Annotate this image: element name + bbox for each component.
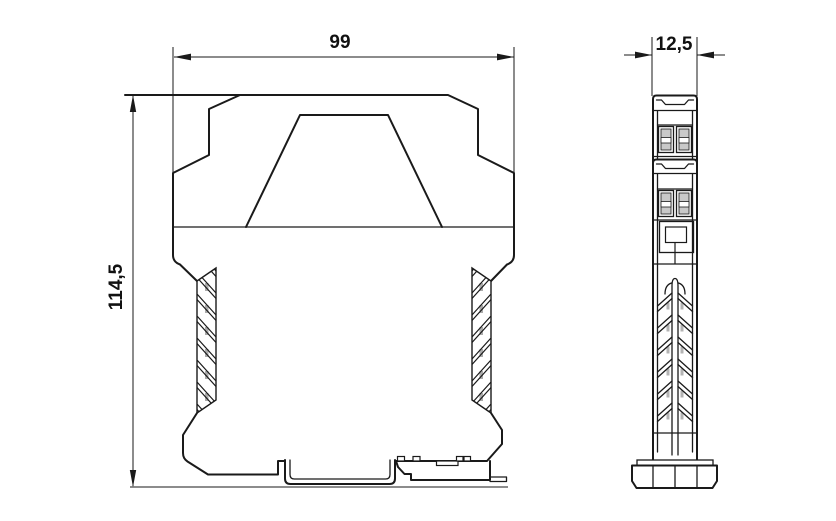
dimension-arrow-icon [635,52,652,59]
dimension-arrow-icon [497,54,514,61]
dimension-side-width: 12,5 [624,34,725,96]
side-inner-rails [658,111,693,452]
front-outline-bottom-left [183,413,285,475]
fir-tree-branches-right [678,293,693,422]
terminal-screws [659,127,692,217]
din-rail-channel-outer [285,460,395,484]
front-connector-band-right [472,268,491,413]
side-top-cap [653,96,697,112]
dimension-arrow-icon [697,52,714,59]
dimension-label-front-width: 99 [329,32,350,53]
extension-lines [173,47,514,173]
fir-tree-connector [653,279,697,456]
dimension-label-front-height: 114,5 [106,263,127,310]
front-view [125,95,514,487]
dimension-arrow-icon [130,95,136,112]
side-top-cap-notch [657,100,694,105]
test-socket [660,222,694,265]
side-body-walls [653,110,697,460]
side-middle-cap-notch [653,164,697,174]
dimension-arrow-icon [130,470,136,487]
front-outline-bottom-right [396,413,502,480]
side-view [632,96,717,489]
front-top-trapezoid [246,115,442,227]
dimension-front-height: 114,5 [106,95,136,487]
front-connector-band-left [197,268,216,413]
dimension-label-side-width: 12,5 [656,34,693,55]
fir-tree-branches-left [658,293,673,422]
technical-drawing: 99 114,5 [0,0,836,521]
drawing-canvas: 99 114,5 [0,0,836,521]
foot-block-inner-lines [653,466,697,489]
side-mounting-foot [632,460,717,488]
front-outline-top [125,95,514,281]
dimension-arrow-icon [174,54,191,61]
side-middle-cap [653,160,697,175]
din-rail-channel-inner [290,460,390,479]
front-foot-tab [490,477,507,482]
